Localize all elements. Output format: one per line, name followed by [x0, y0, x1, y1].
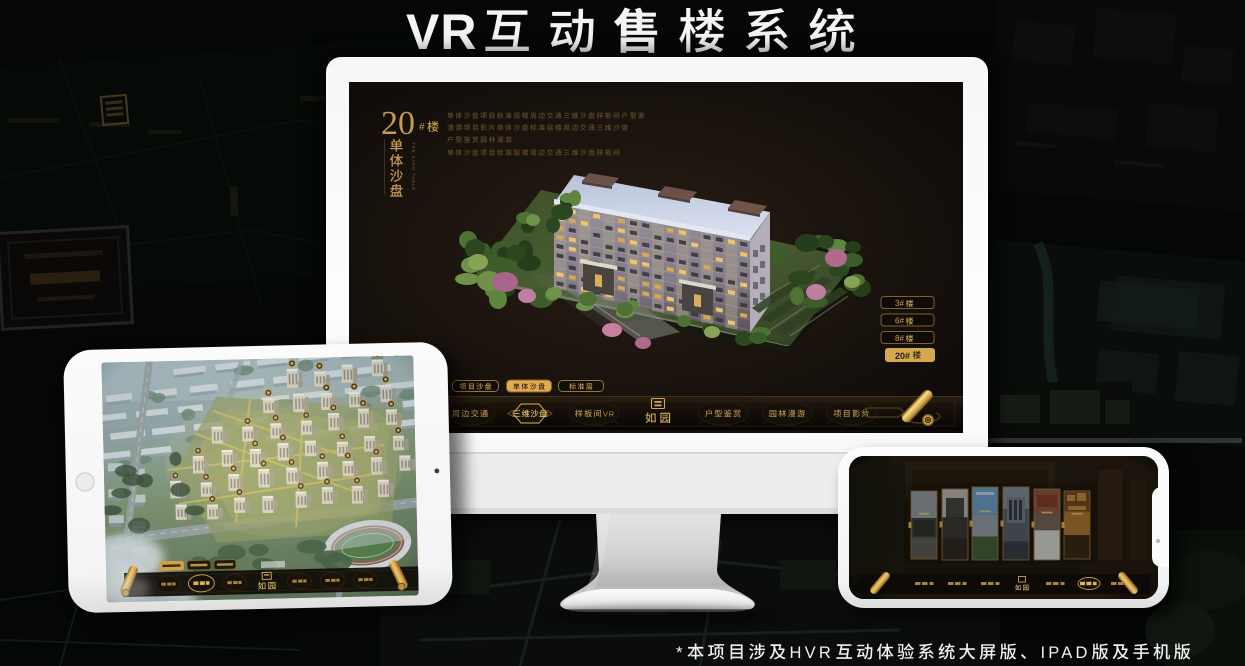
svg-text:20: 20: [381, 105, 415, 142]
svg-text:THE SAND TABLE: THE SAND TABLE: [411, 142, 416, 191]
svg-text:20#: 20#: [895, 351, 910, 361]
svg-text:6#: 6#: [895, 317, 904, 326]
svg-text:8#: 8#: [895, 334, 904, 343]
svg-text:HVR: HVR: [790, 644, 834, 662]
svg-text:*: *: [676, 643, 683, 662]
svg-text:#: #: [419, 122, 425, 133]
svg-text:R: R: [609, 410, 615, 419]
svg-text:3#: 3#: [895, 299, 904, 308]
svg-text:IPAD: IPAD: [1041, 644, 1091, 662]
